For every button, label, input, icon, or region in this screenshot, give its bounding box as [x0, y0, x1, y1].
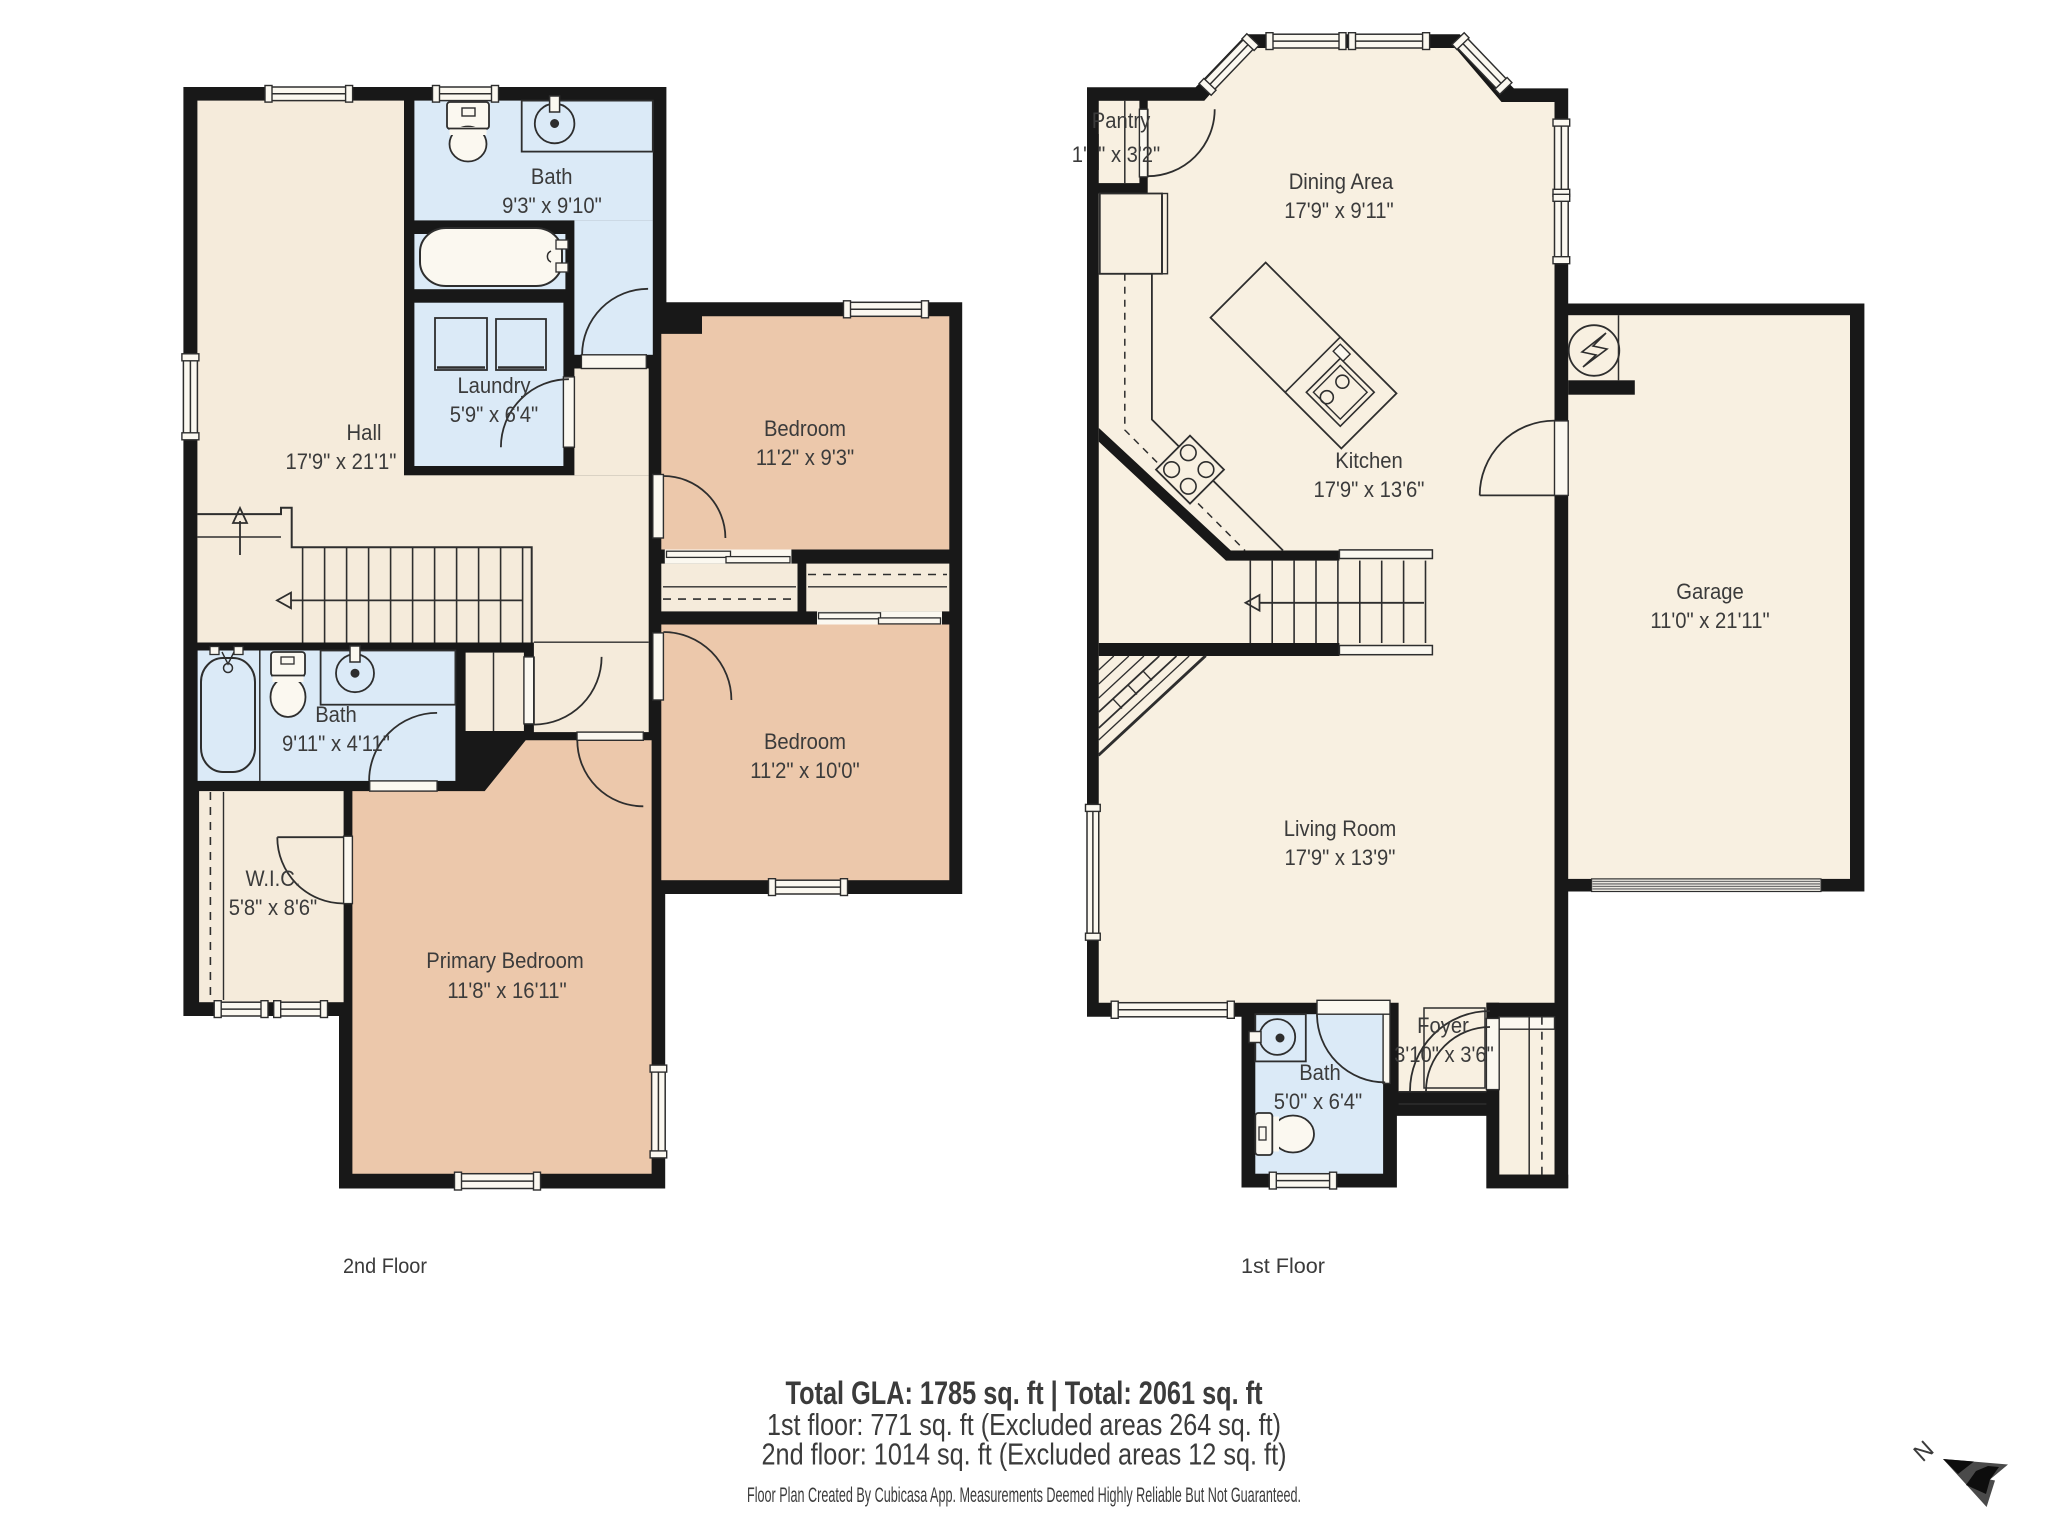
svg-text:17'9" x 13'9": 17'9" x 13'9" [1285, 845, 1396, 870]
svg-text:Floor Plan Created By Cubicasa: Floor Plan Created By Cubicasa App. Meas… [747, 1484, 1301, 1507]
svg-text:Dining Area: Dining Area [1289, 169, 1394, 194]
svg-text:Bedroom: Bedroom [764, 416, 846, 441]
svg-text:17'9" x 21'1": 17'9" x 21'1" [286, 449, 397, 474]
svg-text:Primary Bedroom: Primary Bedroom [426, 948, 584, 973]
svg-text:Living Room: Living Room [1284, 816, 1397, 841]
svg-text:11'2" x 10'0": 11'2" x 10'0" [750, 758, 860, 783]
svg-text:Bath: Bath [531, 164, 573, 189]
svg-text:17'9" x 9'11": 17'9" x 9'11" [1284, 198, 1394, 223]
svg-text:Bath: Bath [1299, 1060, 1341, 1085]
svg-text:9'11" x 4'11": 9'11" x 4'11" [282, 731, 390, 756]
svg-text:17'9" x 13'6": 17'9" x 13'6" [1314, 477, 1425, 502]
svg-text:1'6" x 3'2": 1'6" x 3'2" [1072, 142, 1161, 167]
svg-text:Pantry: Pantry [1092, 108, 1151, 133]
svg-text:W.I.C.: W.I.C. [245, 866, 300, 891]
svg-text:Total GLA: 1785 sq. ft | Total: Total GLA: 1785 sq. ft | Total: 2061 sq.… [786, 1375, 1263, 1411]
svg-text:5'8" x 8'6": 5'8" x 8'6" [229, 895, 318, 920]
svg-text:Foyer: Foyer [1417, 1013, 1469, 1038]
svg-text:11'0" x 21'11": 11'0" x 21'11" [1650, 608, 1769, 633]
svg-text:9'3" x 9'10": 9'3" x 9'10" [502, 193, 602, 218]
svg-text:Bedroom: Bedroom [764, 729, 846, 754]
svg-text:3'10" x 3'6": 3'10" x 3'6" [1394, 1042, 1494, 1067]
svg-text:Laundry: Laundry [457, 373, 530, 398]
svg-text:Hall: Hall [347, 420, 382, 445]
svg-text:2nd Floor: 2nd Floor [343, 1254, 427, 1278]
svg-text:1st Floor: 1st Floor [1241, 1254, 1325, 1278]
svg-text:5'0" x 6'4": 5'0" x 6'4" [1274, 1089, 1363, 1114]
svg-text:Bath: Bath [315, 702, 357, 727]
svg-text:Garage: Garage [1676, 579, 1744, 604]
svg-text:11'8" x 16'11": 11'8" x 16'11" [447, 978, 566, 1003]
svg-text:11'2" x 9'3": 11'2" x 9'3" [756, 445, 854, 470]
svg-text:Kitchen: Kitchen [1335, 448, 1403, 473]
svg-text:2nd floor: 1014 sq. ft (Exclud: 2nd floor: 1014 sq. ft (Excluded areas 1… [762, 1437, 1287, 1472]
svg-text:5'9" x 6'4": 5'9" x 6'4" [450, 402, 539, 427]
